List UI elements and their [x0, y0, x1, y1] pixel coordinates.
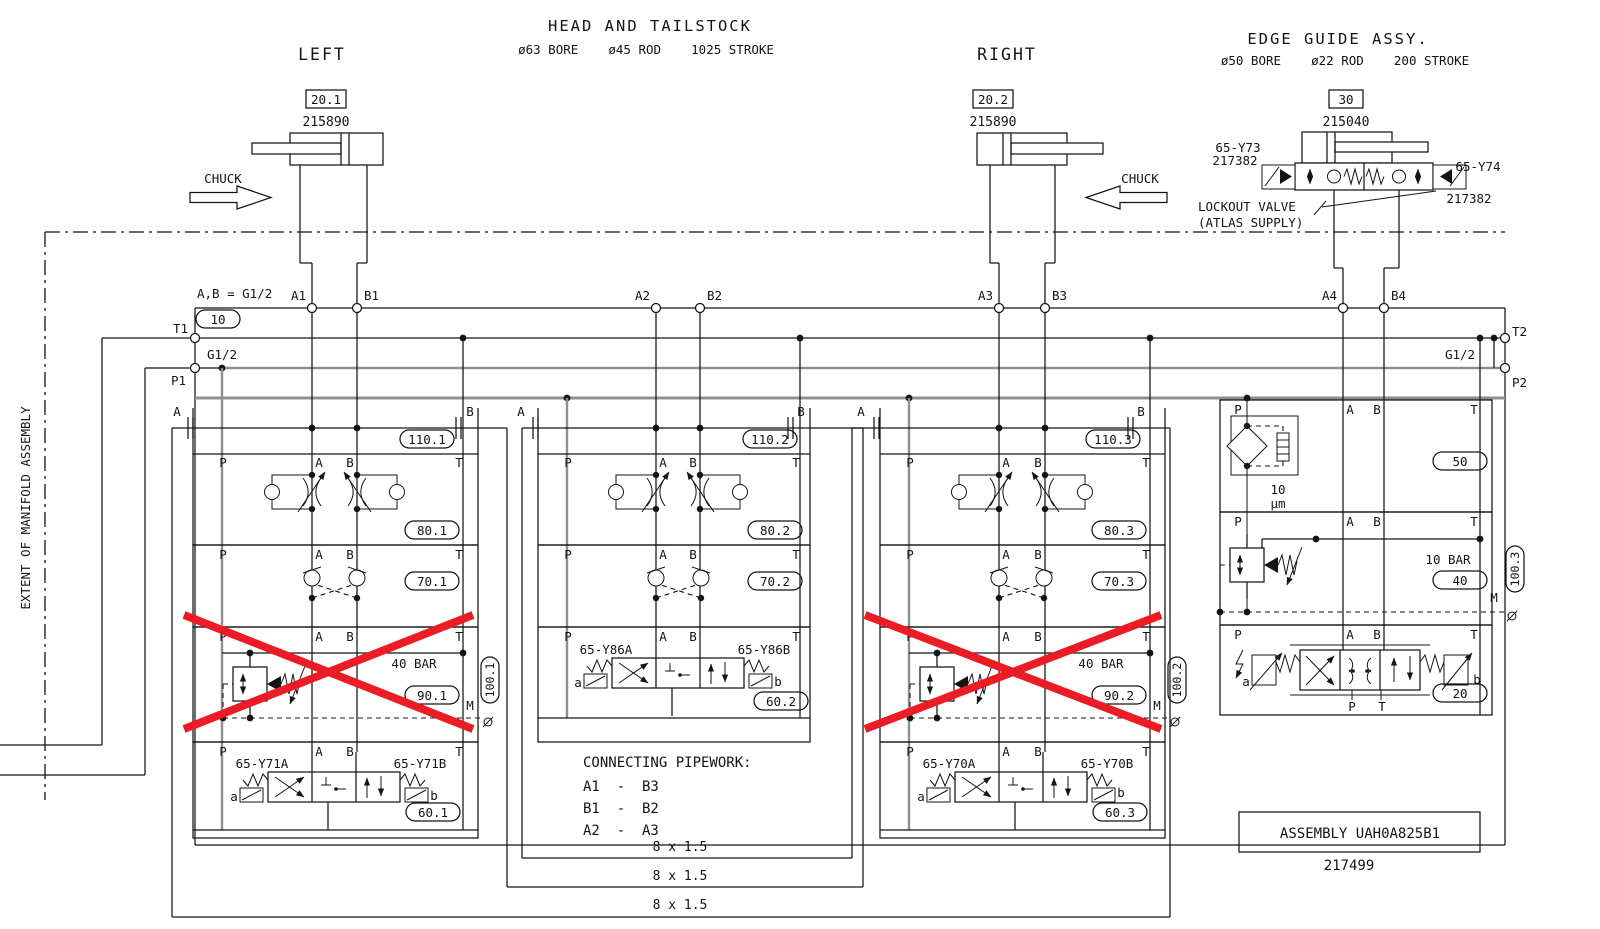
e40-t: T	[1470, 514, 1478, 529]
s1-tag-90: 90.1	[417, 688, 447, 703]
s2-70-b: B	[689, 547, 697, 562]
cylinder-left: 20.1 215890 CHUCK	[190, 90, 383, 305]
cylinder-right-tag: 20.2	[978, 92, 1008, 107]
s1-60-p: P	[219, 744, 227, 759]
manifold-rails: A,B = G1/2 10 T1 P1 T2 P2 G1/2 G1/2	[0, 286, 1527, 845]
e20-a: A	[1346, 627, 1354, 642]
s1-80-t: T	[455, 455, 463, 470]
s1-90-t: T	[455, 629, 463, 644]
e50-p: P	[1234, 402, 1242, 417]
hydraulic-schematic-page: HEAD AND TAILSTOCK ø63 BORE ø45 ROD 1025…	[0, 0, 1600, 929]
main-spec: ø63 BORE ø45 ROD 1025 STROKE	[518, 42, 774, 57]
manifold-section-2: A B 110.2 P A B T 80.2 P A B T 70.2 P A …	[517, 404, 863, 742]
proportional-valve-20	[1236, 640, 1472, 700]
s3-port-b-label: B	[1137, 404, 1145, 419]
s2-80-t: T	[792, 455, 800, 470]
edge-guide-manifold-section: P A B T 10 µm 50 P A B T 10 BAR 40 M 100…	[1217, 400, 1524, 715]
s2-60-p: P	[564, 629, 572, 644]
s3-gauge-m: M	[1153, 698, 1161, 713]
pipework-note-line2: B1 - B2	[583, 801, 659, 817]
s1-90-b: B	[346, 629, 354, 644]
filter-rating-value: 10	[1270, 482, 1285, 497]
ab-ports-note: A,B = G1/2	[197, 286, 272, 301]
s2-solenoid-a-tag: 65-Y86A	[580, 642, 633, 657]
port-b3: B3	[1052, 288, 1067, 303]
s3-80-b: B	[1034, 455, 1042, 470]
extent-label: EXTENT OF MANIFOLD ASSEMBLY	[18, 406, 33, 610]
s1-tag-100: 100.1	[483, 663, 497, 698]
s3-70-b: B	[1034, 547, 1042, 562]
s1-valve-b: b	[430, 788, 438, 803]
e20-t: T	[1470, 627, 1478, 642]
e40-p: P	[1234, 514, 1242, 529]
port-b1: B1	[364, 288, 379, 303]
pipe-size-1: 8 x 1.5	[653, 840, 708, 855]
s3-tag-80: 80.3	[1104, 523, 1134, 538]
s3-tag-110: 110.3	[1094, 432, 1132, 447]
deletion-cross-90-1	[184, 615, 473, 729]
main-title: HEAD AND TAILSTOCK	[548, 17, 752, 35]
e50-t: T	[1470, 402, 1478, 417]
s2-70-t: T	[792, 547, 800, 562]
s3-70-a: A	[1002, 547, 1010, 562]
e20-valve-p: P	[1348, 699, 1356, 714]
s1-60-b: B	[346, 744, 354, 759]
port-p2: P2	[1512, 375, 1527, 390]
pipe-size-3: 8 x 1.5	[653, 898, 708, 913]
e40-a: A	[1346, 514, 1354, 529]
g12-left-label: G1/2	[207, 347, 237, 362]
s3-solenoid-a-tag: 65-Y70A	[923, 756, 976, 771]
s2-solenoid-b-tag: 65-Y86B	[738, 642, 791, 657]
assembly-number: 217499	[1324, 858, 1375, 874]
s2-port-a-label: A	[517, 404, 525, 419]
s1-90-a: A	[315, 629, 323, 644]
s1-70-t: T	[455, 547, 463, 562]
s1-solenoid-a-tag: 65-Y71A	[236, 756, 289, 771]
chuck-arrow-left-icon	[1086, 186, 1167, 209]
s1-80-p: P	[219, 455, 227, 470]
s1-60-a: A	[315, 744, 323, 759]
s1-port-a-label: A	[173, 404, 181, 419]
edge-cylinder-part: 215040	[1323, 115, 1370, 130]
chuck-label-right: CHUCK	[1121, 171, 1159, 186]
s1-tag-60: 60.1	[418, 805, 448, 820]
cylinder-right-part: 215890	[970, 115, 1017, 130]
s3-70-t: T	[1142, 547, 1150, 562]
edge-gauge-m: M	[1490, 590, 1498, 605]
e20-a-sol: a	[1242, 674, 1250, 689]
s2-60-t: T	[792, 629, 800, 644]
assembly-title-block: ASSEMBLY UAH0A825B1 217499	[1239, 812, 1480, 874]
s1-80-b: B	[346, 455, 354, 470]
s1-80-a: A	[315, 455, 323, 470]
s2-70-p: P	[564, 547, 572, 562]
s3-90-a: A	[1002, 629, 1010, 644]
pipe-size-2: 8 x 1.5	[653, 869, 708, 884]
lockout-note-line2: (ATLAS SUPPLY)	[1198, 215, 1303, 230]
tag-40: 40	[1452, 573, 1467, 588]
s3-70-p: P	[906, 547, 914, 562]
solenoid-right-tag: 65-Y74	[1455, 159, 1500, 174]
s2-80-a: A	[659, 455, 667, 470]
s3-port-a-label: A	[857, 404, 865, 419]
s2-60-a: A	[659, 629, 667, 644]
s3-tag-60: 60.3	[1105, 805, 1135, 820]
s1-solenoid-b-tag: 65-Y71B	[394, 756, 447, 771]
edge-guide-spec: ø50 BORE ø22 ROD 200 STROKE	[1221, 53, 1469, 68]
titles: HEAD AND TAILSTOCK ø63 BORE ø45 ROD 1025…	[298, 17, 1469, 68]
schematic-canvas: HEAD AND TAILSTOCK ø63 BORE ø45 ROD 1025…	[0, 0, 1600, 929]
s1-70-p: P	[219, 547, 227, 562]
cylinder-left-part: 215890	[303, 115, 350, 130]
s2-80-b: B	[689, 455, 697, 470]
filter-rating-unit: µm	[1270, 496, 1285, 511]
chuck-label-left: CHUCK	[204, 171, 242, 186]
s2-valve-b: b	[774, 674, 782, 689]
s1-60-t: T	[455, 744, 463, 759]
s3-valve-b: b	[1117, 785, 1125, 800]
s2-valve-a: a	[574, 675, 582, 690]
s3-valve-a: a	[917, 789, 925, 804]
right-label: RIGHT	[977, 45, 1037, 64]
s2-tag-80: 80.2	[760, 523, 790, 538]
s2-tag-110: 110.2	[751, 432, 789, 447]
s1-70-b: B	[346, 547, 354, 562]
edge-guide-title: EDGE GUIDE ASSY.	[1247, 30, 1428, 48]
edge-guide-assembly: 30 215040 65-Y73 217382 65-Y74 217382 LO…	[1198, 90, 1501, 305]
port-b2: B2	[707, 288, 722, 303]
tag-20: 20	[1452, 686, 1467, 701]
edge-cylinder-tag: 30	[1338, 92, 1353, 107]
pipework-note-line3: A2 - A3	[583, 823, 659, 839]
tag-100-3: 100.3	[1508, 552, 1522, 587]
left-label: LEFT	[298, 45, 346, 64]
solenoid-right-partno: 217382	[1446, 191, 1491, 206]
s2-80-p: P	[564, 455, 572, 470]
s3-80-t: T	[1142, 455, 1150, 470]
s1-tag-110: 110.1	[408, 432, 446, 447]
pipework-note-line1: A1 - B3	[583, 779, 659, 795]
manifold-block-tag: 10	[210, 312, 225, 327]
e20-p: P	[1234, 627, 1242, 642]
g12-right-label: G1/2	[1445, 347, 1475, 362]
port-t1: T1	[173, 321, 188, 336]
port-b4: B4	[1391, 288, 1406, 303]
s1-port-b-label: B	[466, 404, 474, 419]
lockout-valve	[1262, 163, 1466, 190]
port-t2: T2	[1512, 324, 1527, 339]
s1-valve-a: a	[230, 789, 238, 804]
s1-gauge-m: M	[466, 698, 474, 713]
s3-60-t: T	[1142, 744, 1150, 759]
port-a3: A3	[978, 288, 993, 303]
port-a1: A1	[291, 288, 306, 303]
s3-80-p: P	[906, 455, 914, 470]
s1-pressure-setting: 40 BAR	[391, 656, 437, 671]
e50-b: B	[1373, 402, 1381, 417]
solenoid-left-partno: 217382	[1212, 153, 1257, 168]
e50-a: A	[1346, 402, 1354, 417]
s2-tag-70: 70.2	[760, 574, 790, 589]
s3-pressure-setting: 40 BAR	[1078, 656, 1124, 671]
cylinder-left-tag: 20.1	[311, 92, 341, 107]
port-a2: A2	[635, 288, 650, 303]
s3-90-b: B	[1034, 629, 1042, 644]
port-p1: P1	[171, 373, 186, 388]
pipework-note-title: CONNECTING PIPEWORK:	[583, 755, 752, 771]
s2-tag-60: 60.2	[766, 694, 796, 709]
s3-80-a: A	[1002, 455, 1010, 470]
e40-b: B	[1373, 514, 1381, 529]
lockout-note-line1: LOCKOUT VALVE	[1198, 199, 1296, 214]
e20-valve-t: T	[1378, 699, 1386, 714]
chuck-arrow-right-icon	[190, 186, 271, 209]
s3-tag-70: 70.3	[1104, 574, 1134, 589]
edge-pressure-setting: 10 BAR	[1425, 552, 1471, 567]
s3-60-p: P	[906, 744, 914, 759]
s1-tag-80: 80.1	[417, 523, 447, 538]
s3-solenoid-b-tag: 65-Y70B	[1081, 756, 1134, 771]
e20-b: B	[1373, 627, 1381, 642]
s1-70-a: A	[315, 547, 323, 562]
s3-90-t: T	[1142, 629, 1150, 644]
s3-60-a: A	[1002, 744, 1010, 759]
tag-50: 50	[1452, 454, 1467, 469]
s2-60-b: B	[689, 629, 697, 644]
s2-port-b-label: B	[797, 404, 805, 419]
s1-tag-70: 70.1	[417, 574, 447, 589]
assembly-label: ASSEMBLY UAH0A825B1	[1280, 826, 1440, 842]
cylinder-right: 20.2 215890 CHUCK	[970, 90, 1167, 305]
s3-60-b: B	[1034, 744, 1042, 759]
s2-70-a: A	[659, 547, 667, 562]
s3-tag-90: 90.2	[1104, 688, 1134, 703]
s3-tag-100: 100.2	[1170, 663, 1184, 698]
port-a4: A4	[1322, 288, 1337, 303]
